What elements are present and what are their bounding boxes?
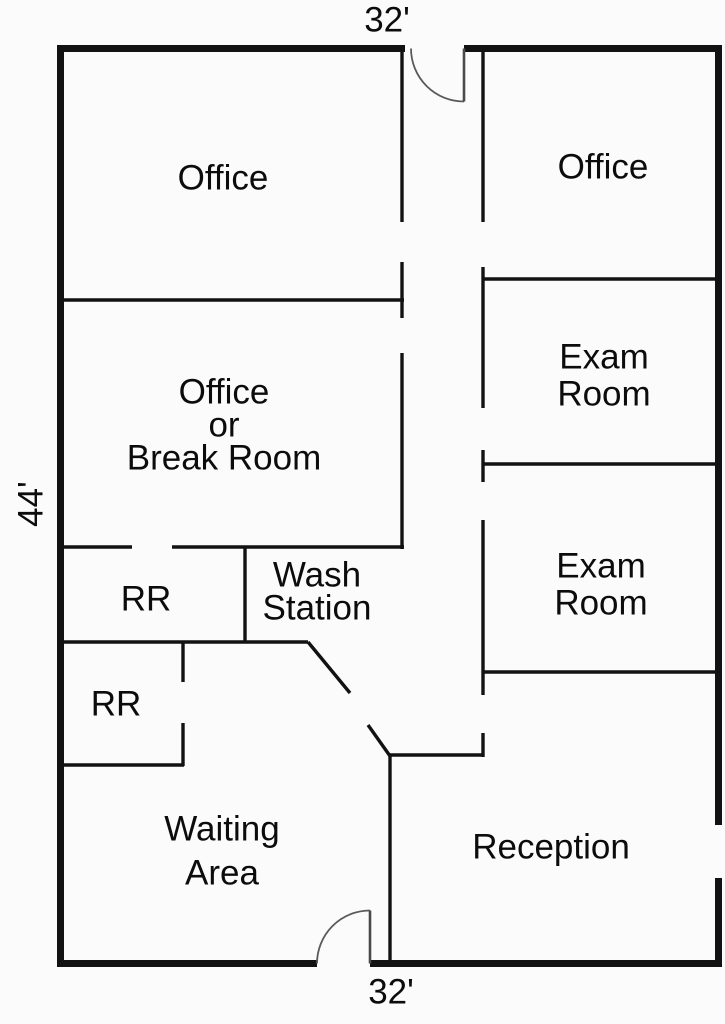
room-exam-room-2-line-1: Exam [556,546,645,585]
room-exam-room-2-label: ExamRoom [554,546,647,622]
room-office-northeast-line-1: Office [558,147,649,186]
room-reception-label: Reception [472,827,630,866]
dimension-left-line-1: 44' [11,481,50,527]
room-wash-station-line-2: Station [263,588,372,627]
floor-plan-page: 32'32'44'OfficeOfficeExamRoomExamRoomOff… [0,0,725,1024]
room-exam-room-1-line-2: Room [557,374,650,413]
room-exam-room-1-line-1: Exam [559,337,648,376]
dimension-bottom-label: 32' [368,972,414,1011]
room-restroom-2-line-1: RR [91,684,142,723]
room-exam-room-1-label: ExamRoom [557,337,650,413]
dimension-left-label: 44' [11,481,50,527]
room-reception-line-1: Reception [472,827,630,866]
room-office-northwest-label: Office [178,158,269,197]
room-wash-station-label: WashStation [263,555,372,627]
floor-plan-canvas: 32'32'44'OfficeOfficeExamRoomExamRoomOff… [0,0,725,1024]
room-restroom-1-label: RR [121,579,172,618]
room-restroom-2-label: RR [91,684,142,723]
room-office-northeast-label: Office [558,147,649,186]
room-exam-room-2-line-2: Room [554,583,647,622]
dimension-top-line-1: 32' [364,0,410,39]
room-waiting-area-line-2: Area [185,853,259,892]
room-office-northwest-line-1: Office [178,158,269,197]
room-waiting-area-line-1: Waiting [164,809,279,848]
room-restroom-1-line-1: RR [121,579,172,618]
dimension-top-label: 32' [364,0,410,39]
room-office-break-line-3: Break Room [127,438,322,477]
dimension-bottom-line-1: 32' [368,972,414,1011]
